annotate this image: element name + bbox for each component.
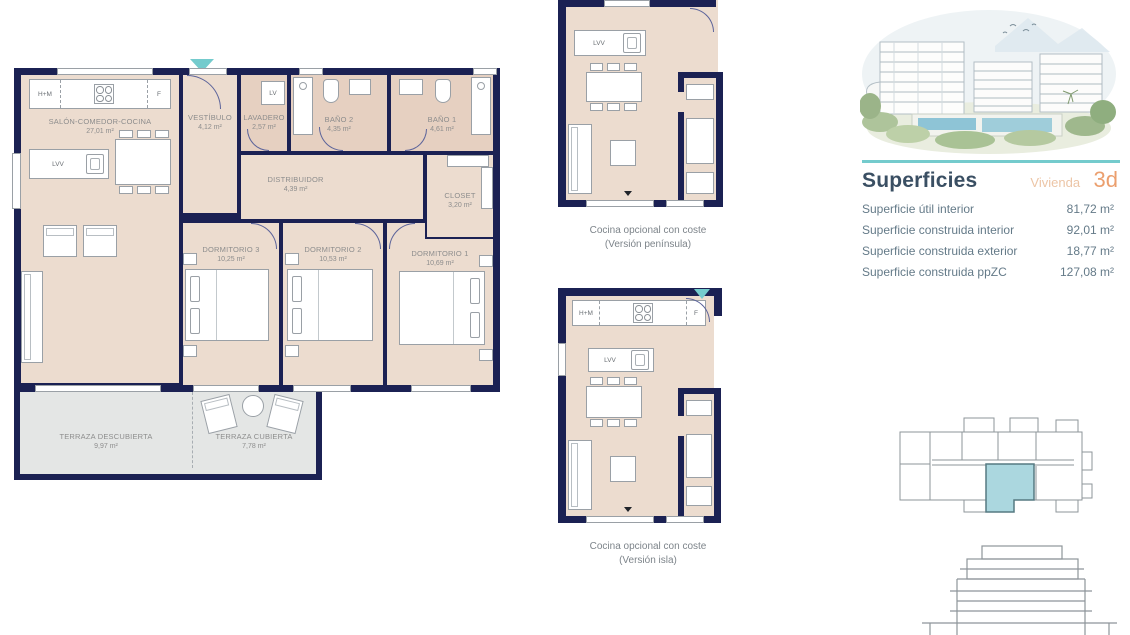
vivienda-label: Vivienda — [1030, 175, 1080, 190]
chair — [590, 419, 603, 427]
room-lavadero: LV LAVADERO 2,57 m² — [239, 75, 289, 153]
kitchen-option-caption: Cocina opcional con coste (Versión penín… — [558, 224, 738, 251]
superficie-row: Superficie construida interior 92,01 m² — [862, 219, 1114, 240]
room-name: TERRAZA DESCUBIERTA — [20, 432, 192, 442]
wall — [650, 0, 716, 7]
sink-icon — [86, 154, 104, 174]
kitchen-island: LVV — [588, 348, 654, 372]
nightstand — [479, 255, 493, 267]
washbasin-icon — [399, 79, 423, 95]
armchair — [83, 225, 117, 257]
burner-icon — [96, 95, 104, 103]
unit-locator-keyplan — [886, 400, 1096, 532]
wall — [678, 72, 684, 92]
window — [666, 200, 704, 207]
chair — [590, 103, 603, 111]
chair — [137, 130, 151, 138]
toilet-icon — [323, 79, 339, 103]
room-name: DORMITORIO 1 — [387, 249, 493, 259]
oven-micro-label: H+M — [30, 80, 60, 108]
room-bano1: BAÑO 1 4,61 m² — [389, 75, 493, 153]
dining-table — [586, 72, 642, 102]
burner-icon — [635, 314, 643, 322]
terrace: TERRAZA DESCUBIERTA 9,97 m² TERRAZA CUBI… — [14, 392, 322, 480]
room-label: VESTÍBULO 4,12 m² — [183, 113, 237, 133]
chair — [155, 130, 169, 138]
dishwasher-label: LVV — [575, 40, 623, 47]
caption-line1: Cocina opcional con coste — [558, 540, 738, 554]
side-table — [610, 140, 636, 166]
wall — [714, 288, 722, 316]
room-salon: H+M F SALÓN-COMEDOR-COCINA 27,01 m² LVV — [21, 75, 181, 385]
room-area: 10,69 m² — [387, 259, 493, 268]
pillow — [470, 312, 480, 338]
building-render-illustration — [860, 2, 1118, 154]
nightstand — [285, 253, 299, 265]
entrance-arrow-icon — [694, 289, 710, 299]
chair — [119, 130, 133, 138]
adjacent-furniture — [686, 486, 712, 506]
room-distribuidor: DISTRIBUIDOR 4,39 m² — [239, 153, 425, 221]
bath1-window — [473, 68, 497, 75]
room-label: TERRAZA DESCUBIERTA 9,97 m² — [20, 432, 192, 452]
wall — [714, 388, 721, 523]
chair — [590, 377, 603, 385]
door-arc — [389, 223, 415, 249]
main-floorplan: H+M F SALÓN-COMEDOR-COCINA 27,01 m² LVV — [14, 60, 510, 525]
window — [666, 516, 704, 523]
bath2-window — [299, 68, 323, 75]
wall — [566, 0, 604, 7]
nightstand — [183, 253, 197, 265]
superficies-table: Superficie útil interior 81,72 m² Superf… — [862, 198, 1114, 282]
burner-icon — [635, 305, 643, 313]
bed-fold-line — [318, 270, 319, 340]
window — [586, 516, 654, 523]
door-arc — [405, 129, 427, 151]
door-arc — [187, 75, 221, 109]
side-table — [610, 456, 636, 482]
superficie-value: 92,01 m² — [1067, 223, 1114, 237]
kitchen-option-peninsula-plan: LVV — [558, 0, 738, 215]
door-arc — [251, 223, 277, 249]
oven-micro-label: H+M — [573, 301, 599, 325]
room-label: DISTRIBUIDOR 4,39 m² — [241, 175, 350, 195]
kitchen-window — [57, 68, 153, 75]
adjacent-furniture — [686, 400, 712, 416]
bedroom2-window — [293, 385, 351, 392]
chair — [624, 63, 637, 71]
room-name: VESTÍBULO — [183, 113, 237, 123]
kitchen-island: LVV — [29, 149, 109, 179]
superficie-value: 18,77 m² — [1067, 244, 1114, 258]
bedroom3-window — [193, 385, 259, 392]
door-marker-icon — [624, 507, 632, 512]
burner-icon — [644, 305, 652, 313]
worktop — [60, 80, 148, 108]
bed — [287, 269, 373, 341]
pillow — [190, 308, 200, 334]
room-bano2: BAÑO 2 4,35 m² — [289, 75, 389, 153]
worktop — [599, 301, 687, 325]
dishwasher-label: LVV — [30, 161, 86, 168]
chair — [607, 377, 620, 385]
adjacent-bed — [686, 118, 714, 164]
nightstand — [183, 345, 197, 357]
burner-icon — [105, 86, 113, 94]
vivienda-value: 3d — [1094, 167, 1118, 192]
room-label: TERRAZA CUBIERTA 7,78 m² — [192, 432, 316, 452]
room-area: 7,78 m² — [192, 442, 316, 451]
brochure-page: { "floorplan": { "appliances": { "hm": "… — [0, 0, 1130, 635]
sofa — [21, 271, 43, 363]
room-area: 10,25 m² — [183, 255, 279, 264]
room-name: DISTRIBUIDOR — [241, 175, 350, 185]
pillow — [470, 278, 480, 304]
chair — [607, 103, 620, 111]
dishwasher-label: LVV — [589, 357, 631, 364]
door-arc — [247, 129, 269, 151]
window — [586, 200, 654, 207]
chair — [155, 186, 169, 194]
chair — [624, 419, 637, 427]
bed — [185, 269, 269, 341]
wall — [678, 112, 684, 200]
bed-fold-line — [453, 272, 454, 344]
closet-shelf — [447, 155, 489, 167]
window — [558, 343, 566, 376]
room-name: LAVADERO — [241, 113, 287, 123]
superficie-label: Superficie construida interior — [862, 223, 1014, 237]
superficie-row: Superficie construida exterior 18,77 m² — [862, 240, 1114, 261]
caption-line1: Cocina opcional con coste — [558, 224, 738, 238]
pillow — [292, 276, 302, 302]
kitchen-option-isla-plan: H+M F LVV — [558, 288, 738, 530]
nightstand — [479, 349, 493, 361]
superficie-value: 127,08 m² — [1060, 265, 1114, 279]
caption-line2: (Versión isla) — [558, 554, 738, 568]
chair — [607, 63, 620, 71]
wall — [678, 388, 684, 416]
sofa — [568, 124, 592, 194]
apartment-outline: H+M F SALÓN-COMEDOR-COCINA 27,01 m² LVV — [14, 68, 500, 392]
nightstand — [285, 345, 299, 357]
room-dorm1: DORMITORIO 1 10,69 m² — [385, 221, 493, 385]
superficies-header: Superficies Vivienda 3d — [862, 167, 1118, 193]
superficie-row: Superficie construida ppZC 127,08 m² — [862, 261, 1114, 282]
bed — [399, 271, 485, 345]
superficie-label: Superficie construida ppZC — [862, 265, 1007, 279]
room-dorm2: DORMITORIO 2 10,53 m² — [281, 221, 385, 385]
chair — [590, 63, 603, 71]
room-area: 4,39 m² — [241, 185, 350, 194]
fridge-label: F — [148, 80, 170, 108]
window — [604, 0, 650, 7]
toilet-icon — [435, 79, 451, 103]
kitchen-peninsula: LVV — [574, 30, 646, 56]
sofa — [568, 440, 592, 510]
kitchen-option-caption: Cocina opcional con coste (Versión isla) — [558, 540, 738, 567]
wall — [558, 288, 566, 523]
room-closet: CLOSET 3,20 m² — [425, 153, 493, 239]
terrace-divider — [192, 392, 193, 468]
superficie-row: Superficie útil interior 81,72 m² — [862, 198, 1114, 219]
burner-icon — [105, 95, 113, 103]
wall — [558, 0, 566, 207]
door-arc — [355, 223, 381, 249]
adjacent-furniture — [686, 84, 714, 100]
pillow — [292, 308, 302, 334]
living-side-window — [12, 153, 21, 209]
living-terrace-door — [35, 385, 161, 392]
armchair — [43, 225, 77, 257]
room-name: SALÓN-COMEDOR-COCINA — [21, 117, 179, 127]
dining-table — [586, 386, 642, 418]
terrace-chair — [266, 394, 303, 434]
wall — [678, 436, 684, 516]
sink-icon — [631, 350, 649, 370]
chair — [137, 186, 151, 194]
vivienda-group: Vivienda 3d — [1030, 167, 1118, 193]
room-vestibulo: VESTÍBULO 4,12 m² — [181, 75, 239, 215]
adjacent-bed — [686, 434, 712, 478]
wall — [716, 72, 723, 207]
superficie-value: 81,72 m² — [1067, 202, 1114, 216]
burner-icon — [644, 314, 652, 322]
superficie-label: Superficie construida exterior — [862, 244, 1017, 258]
entrance-door-opening — [189, 68, 227, 75]
building-elevation-diagram — [912, 543, 1127, 635]
sink-icon — [623, 33, 641, 53]
dining-table — [115, 139, 171, 185]
room-area: 9,97 m² — [20, 442, 192, 451]
shower-icon — [471, 77, 491, 135]
room-dorm3: DORMITORIO 3 10,25 m² — [181, 221, 281, 385]
kitchen-counter: H+M F — [29, 79, 171, 109]
chair — [624, 103, 637, 111]
bed-fold-line — [216, 270, 217, 340]
superficie-label: Superficie útil interior — [862, 202, 974, 216]
cooktop-icon — [94, 84, 114, 104]
chair — [119, 186, 133, 194]
caption-line2: (Versión península) — [558, 238, 738, 252]
closet-shelf — [481, 167, 493, 209]
adjacent-furniture — [686, 172, 714, 194]
washer-label: LV — [261, 81, 285, 105]
terrace-chair — [200, 394, 237, 434]
room-label: DORMITORIO 1 10,69 m² — [387, 249, 493, 269]
highlighted-unit — [986, 464, 1034, 512]
pillow — [190, 276, 200, 302]
room-area: 4,12 m² — [183, 123, 237, 132]
terrace-table — [242, 395, 264, 417]
door-arc — [319, 127, 343, 151]
shower-icon — [293, 77, 313, 135]
burner-icon — [96, 86, 104, 94]
bedroom1-window — [411, 385, 471, 392]
chair — [607, 419, 620, 427]
cooktop-icon — [633, 303, 653, 323]
superficies-title: Superficies — [862, 169, 977, 193]
chair — [624, 377, 637, 385]
washbasin-icon — [349, 79, 371, 95]
door-marker-icon — [624, 191, 632, 196]
teal-divider-rule — [862, 160, 1120, 163]
